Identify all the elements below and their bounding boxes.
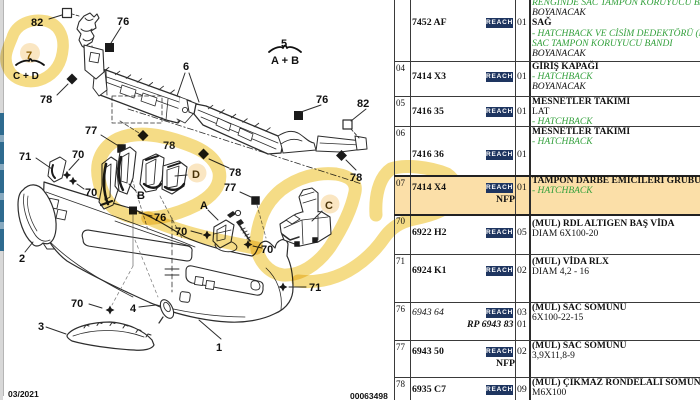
svg-text:78: 78 bbox=[229, 167, 241, 179]
svg-text:76: 76 bbox=[117, 16, 129, 28]
svg-text:C: C bbox=[325, 200, 333, 212]
svg-text:82: 82 bbox=[357, 98, 369, 110]
svg-text:00063498: 00063498 bbox=[350, 391, 388, 400]
svg-text:A + B: A + B bbox=[271, 55, 299, 67]
svg-text:2: 2 bbox=[19, 253, 25, 265]
svg-text:6: 6 bbox=[183, 61, 189, 73]
svg-text:70: 70 bbox=[72, 149, 84, 161]
svg-text:77: 77 bbox=[85, 125, 97, 137]
svg-text:3: 3 bbox=[38, 321, 44, 333]
svg-text:4: 4 bbox=[130, 303, 137, 315]
svg-text:D: D bbox=[192, 169, 200, 181]
svg-text:1: 1 bbox=[216, 342, 222, 354]
svg-text:76: 76 bbox=[316, 94, 328, 106]
svg-text:77: 77 bbox=[224, 182, 236, 194]
svg-text:71: 71 bbox=[19, 151, 31, 163]
svg-text:70: 70 bbox=[71, 298, 83, 310]
svg-text:03/2021: 03/2021 bbox=[8, 389, 39, 399]
svg-text:78: 78 bbox=[40, 94, 52, 106]
svg-text:B: B bbox=[137, 190, 145, 202]
